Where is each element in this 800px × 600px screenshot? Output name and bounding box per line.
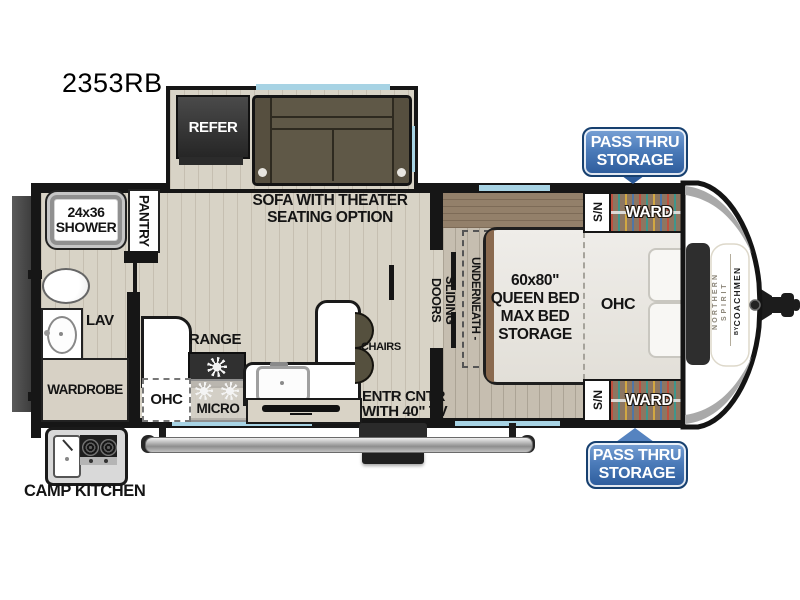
pantry: PANTRY bbox=[128, 189, 160, 253]
bumper-mount-bottom bbox=[28, 392, 42, 401]
range-burner-left bbox=[195, 382, 213, 400]
range-burner-right bbox=[221, 382, 239, 400]
lav-sink-cabinet bbox=[41, 308, 83, 362]
bumper-mount-top bbox=[28, 270, 42, 279]
wardrobe: WARDROBE bbox=[41, 358, 129, 422]
camp-burner-right bbox=[100, 439, 117, 456]
floorplan-canvas: 2353RB REFER SOFA WITH THEATER SEATING O… bbox=[0, 0, 800, 600]
refrigerator-base bbox=[179, 157, 243, 165]
tv-stand-line bbox=[290, 413, 312, 415]
brand-by: BY bbox=[734, 327, 740, 336]
badge-bottom-line1: PASS THRU bbox=[593, 447, 682, 465]
bedroom-bottom-window bbox=[455, 421, 560, 426]
counter-merge-patch bbox=[319, 365, 351, 397]
sofa-cushion-divider bbox=[332, 130, 334, 181]
bedroom-ohc-label: OHC bbox=[596, 296, 640, 314]
sofa-cupholder-left bbox=[258, 168, 267, 177]
wardrobe-label: WARDROBE bbox=[47, 383, 122, 398]
model-number: 2353RB bbox=[62, 68, 163, 99]
camp-sink-drain bbox=[65, 457, 69, 461]
pantry-wall-stub bbox=[124, 251, 158, 263]
badge-top-line1: PASS THRU bbox=[591, 134, 680, 152]
brand-spirit: SPIRIT bbox=[721, 245, 730, 357]
lav-label: LAV bbox=[86, 313, 114, 330]
sn-top-label: S/N bbox=[591, 202, 605, 222]
pass-thru-storage-badge-bottom: PASS THRU STORAGE bbox=[586, 441, 688, 489]
tv-40in bbox=[262, 405, 340, 412]
sofa-backrest-line1 bbox=[269, 116, 395, 118]
entertainment-center bbox=[246, 398, 362, 424]
bedroom-wall-stub-top bbox=[430, 193, 443, 250]
kitchen-ohc-label: OHC bbox=[150, 392, 182, 409]
hitch-coupler-hole bbox=[750, 300, 760, 310]
front-storage-cabinet bbox=[686, 243, 710, 365]
camp-kitchen bbox=[45, 427, 128, 486]
brand-coachmen: BYCOACHMEN bbox=[732, 245, 744, 357]
bedroom-head-wood-strip bbox=[443, 193, 583, 228]
badge-bottom-line2: STORAGE bbox=[599, 465, 676, 483]
refer-label: REFER bbox=[189, 119, 238, 136]
toilet bbox=[42, 268, 90, 304]
brand-rule bbox=[730, 254, 731, 346]
bedroom-wall-stub-bottom bbox=[430, 348, 443, 418]
camp-knob-strip bbox=[80, 457, 117, 465]
bed-label-line1: 60x80" bbox=[489, 272, 581, 289]
shower-label-line1: 24x36 bbox=[68, 205, 105, 220]
sofa-cupholder-right bbox=[397, 168, 406, 177]
camp-sink-faucet bbox=[62, 439, 73, 451]
bed-label-line2: QUEEN BED bbox=[489, 290, 581, 307]
microwave-overlay: MICRO bbox=[186, 379, 250, 422]
sliding-doors-label: SLIDING DOORS bbox=[429, 253, 457, 348]
camp-kitchen-label: CAMP KITCHEN bbox=[24, 482, 144, 500]
camp-knob-right bbox=[104, 459, 108, 463]
sn-bottom-label: S/N bbox=[591, 390, 605, 410]
bed-divider-dashed bbox=[583, 232, 585, 380]
kitchen-ohc: OHC bbox=[142, 378, 191, 422]
lav-faucet-dot bbox=[44, 330, 50, 336]
bed-label-line3: MAX BED bbox=[489, 308, 581, 325]
kitchen-sink bbox=[256, 366, 310, 402]
refrigerator: REFER bbox=[176, 95, 250, 159]
range-label: RANGE bbox=[181, 332, 249, 349]
pass-thru-storage-badge-top: PASS THRU STORAGE bbox=[582, 127, 688, 177]
bedroom-top-window bbox=[479, 185, 550, 191]
hitch-cap bbox=[792, 299, 800, 311]
camp-kitchen-cooktop bbox=[80, 435, 117, 465]
camp-kitchen-sink bbox=[53, 435, 81, 478]
badge-bottom-chevron bbox=[616, 428, 654, 442]
sofa bbox=[252, 95, 412, 186]
lav-drain-dot bbox=[59, 332, 63, 336]
bed-label-line4: STORAGE bbox=[489, 326, 581, 343]
shower: 24x36 SHOWER bbox=[45, 190, 127, 250]
range-burner-top bbox=[207, 357, 227, 377]
camp-burner-left bbox=[82, 439, 99, 456]
pantry-label: PANTRY bbox=[137, 195, 152, 247]
sofa-option-label-line1: SOFA WITH THEATER bbox=[250, 192, 410, 209]
camp-knob-left bbox=[89, 459, 93, 463]
badge-top-line2: STORAGE bbox=[597, 152, 674, 170]
shower-label-line2: SHOWER bbox=[56, 220, 117, 235]
chairs-label: CHAIRS bbox=[361, 341, 401, 353]
bath-door-leaf bbox=[133, 263, 137, 292]
partition-stub bbox=[389, 265, 394, 300]
rear-bumper bbox=[12, 196, 31, 412]
slideout-top-window bbox=[256, 84, 390, 90]
micro-label: MICRO bbox=[188, 402, 248, 417]
awning-tube bbox=[145, 437, 533, 453]
brand-name: COACHMEN bbox=[732, 267, 742, 327]
sink-drain-dot bbox=[280, 381, 284, 385]
sofa-option-label-line2: SEATING OPTION bbox=[250, 209, 410, 226]
